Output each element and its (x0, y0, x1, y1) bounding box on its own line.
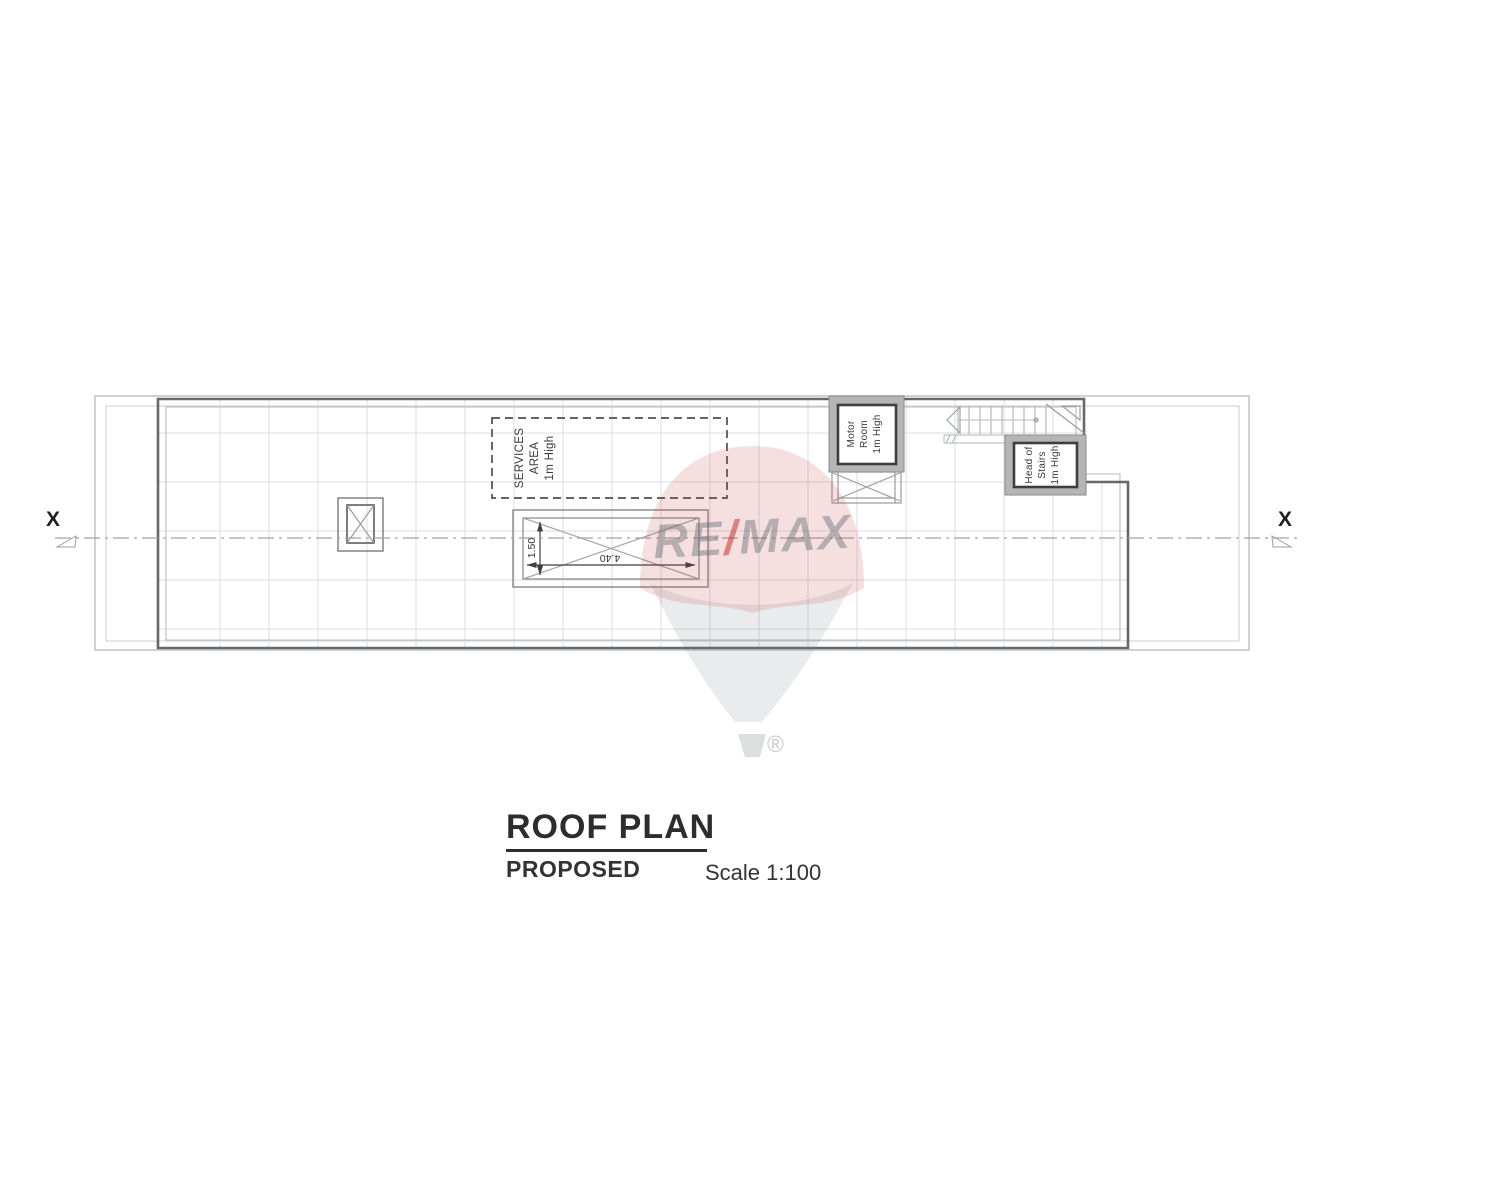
watermark-wordmark: RE/MAX (644, 504, 862, 570)
drawing-subtitle: PROPOSED (506, 856, 640, 883)
motor-room-label: Motor Room 1m High (845, 405, 889, 463)
stairs-landing-edge (944, 435, 1006, 443)
small-roof-opening (338, 498, 383, 551)
roof-plan-sheet: X X SERVICES AREA 1m High Motor Room 1m … (0, 0, 1500, 1200)
roof-plan-drawing (0, 0, 1500, 1200)
services-area-label: SERVICES AREA 1m High (513, 410, 563, 506)
roof-grid (158, 399, 1128, 648)
watermark-re: RE (652, 513, 725, 570)
skylight-height-dim: 1.50 (526, 527, 540, 569)
balloon-basket (738, 734, 766, 757)
drawing-scale: Scale 1:100 (705, 860, 821, 886)
section-marker-left: X (46, 508, 60, 532)
walk-line-dot (1033, 417, 1039, 423)
drawing-title: ROOF PLAN (506, 808, 715, 847)
roof-slab-outline (158, 399, 1128, 648)
watermark-registered-mark: ® (767, 731, 784, 758)
watermark-max: MAX (738, 506, 853, 565)
section-marker-right: X (1278, 508, 1292, 532)
head-of-stairs-label: Head of Stairs 1m High (1023, 436, 1067, 494)
watermark-balloon (640, 446, 864, 757)
skylight-width-dim: 4.40 (580, 550, 640, 564)
title-underline (506, 849, 707, 852)
